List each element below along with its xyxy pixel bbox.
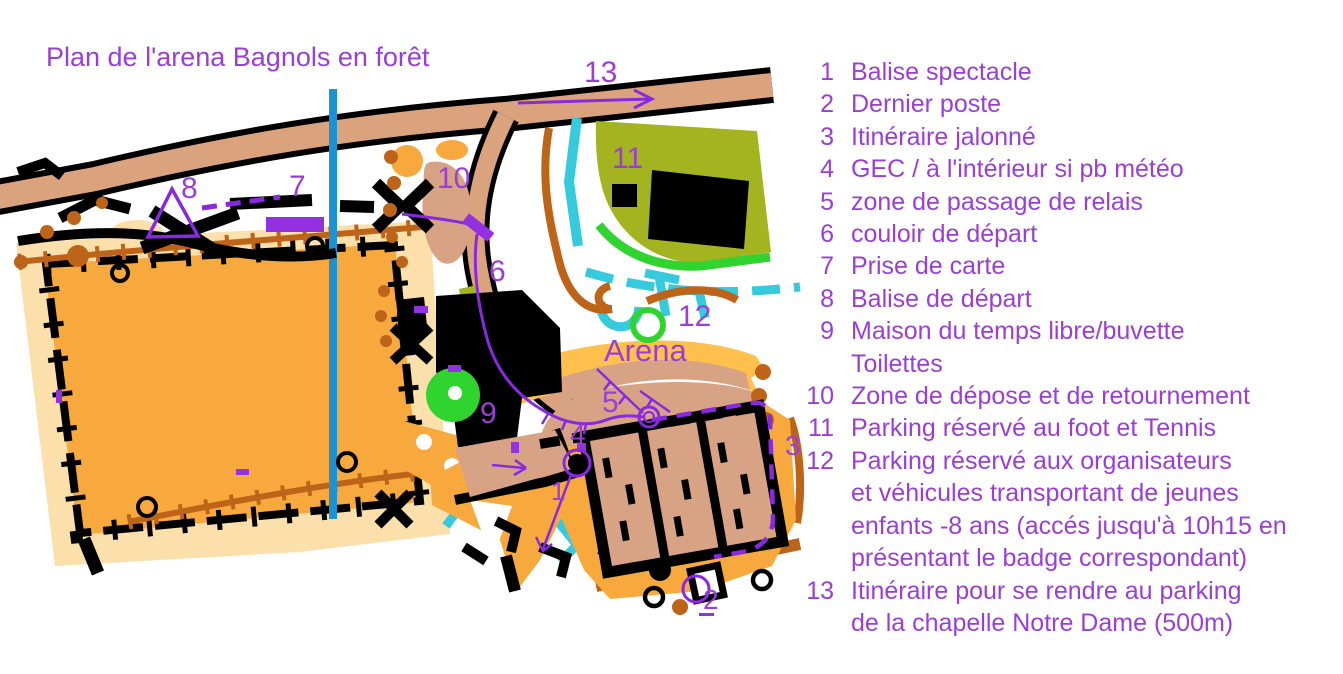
legend-item-4: 4GEC / à l'intérieur si pb météo: [806, 153, 1287, 185]
legend-item-text: Balise spectacle: [851, 56, 1032, 88]
legend-item-text: Itinéraire jalonné: [851, 121, 1036, 153]
legend-item-text: zone de passage de relais: [851, 186, 1143, 218]
legend-item-9: 9Maison du temps libre/buvetteToilettes: [806, 315, 1287, 380]
map-label-3: 3: [785, 430, 801, 461]
screenshot-root: 13111087612Arena954123 Plan de l'arena B…: [0, 0, 1343, 674]
legend-item-text: Parking réservé aux organisateurset véhi…: [851, 445, 1287, 575]
legend-line: Prise de carte: [851, 250, 1005, 282]
legend-item-text: Prise de carte: [851, 250, 1005, 282]
legend-line: Toilettes: [851, 348, 1185, 380]
legend-line: Balise de départ: [851, 283, 1032, 315]
legend-item-text: GEC / à l'intérieur si pb météo: [851, 153, 1184, 185]
legend-item-number: 1: [806, 56, 834, 88]
legend-line: et véhicules transportant de jeunes: [851, 477, 1287, 509]
legend-item-3: 3Itinéraire jalonné: [806, 121, 1287, 153]
legend-item-number: 11: [806, 412, 834, 444]
legend: 1Balise spectacle2Dernier poste3Itinérai…: [806, 56, 1287, 639]
legend-item-7: 7Prise de carte: [806, 250, 1287, 282]
map-label-8: 8: [181, 172, 198, 205]
legend-item-number: 9: [806, 315, 834, 347]
legend-item-text: Parking réservé au foot et Tennis: [851, 412, 1216, 444]
map-label-1: 1: [551, 476, 565, 506]
legend-item-6: 6couloir de départ: [806, 218, 1287, 250]
map-label-5: 5: [602, 386, 619, 419]
map-label-4: 4: [570, 419, 586, 450]
legend-line: Balise spectacle: [851, 56, 1032, 88]
legend-line: Parking réservé aux organisateurs: [851, 445, 1287, 477]
legend-item-text: couloir de départ: [851, 218, 1037, 250]
legend-item-2: 2Dernier poste: [806, 88, 1287, 120]
legend-item-text: Dernier poste: [851, 88, 1001, 120]
legend-line: présentant le badge correspondant): [851, 542, 1287, 574]
legend-item-10: 10Zone de dépose et de retournement: [806, 380, 1287, 412]
legend-item-12: 12Parking réservé aux organisateurset vé…: [806, 445, 1287, 575]
legend-item-11: 11Parking réservé au foot et Tennis: [806, 412, 1287, 444]
legend-item-number: 6: [806, 218, 834, 250]
orienteering-map: 13111087612Arena954123: [0, 0, 810, 674]
legend-item-13: 13Itinéraire pour se rendre au parkingde…: [806, 575, 1287, 640]
legend-item-5: 5zone de passage de relais: [806, 186, 1287, 218]
legend-line: Zone de dépose et de retournement: [851, 380, 1250, 412]
map-label-12: 12: [678, 300, 711, 333]
legend-line: zone de passage de relais: [851, 186, 1143, 218]
map-label-arena: Arena: [604, 333, 687, 368]
legend-item-text: Maison du temps libre/buvetteToilettes: [851, 315, 1185, 380]
legend-line: de la chapelle Notre Dame (500m): [851, 607, 1242, 639]
legend-item-number: 10: [806, 380, 834, 412]
map-label-10: 10: [437, 162, 470, 195]
legend-line: Maison du temps libre/buvette: [851, 315, 1185, 347]
legend-item-8: 8Balise de départ: [806, 283, 1287, 315]
legend-line: Parking réservé au foot et Tennis: [851, 412, 1216, 444]
legend-item-text: Balise de départ: [851, 283, 1032, 315]
legend-item-number: 4: [806, 153, 834, 185]
legend-line: Dernier poste: [851, 88, 1001, 120]
map-label-7: 7: [289, 170, 306, 203]
legend-item-number: 8: [806, 283, 834, 315]
legend-item-number: 7: [806, 250, 834, 282]
legend-item-number: 2: [806, 88, 834, 120]
map-label-6: 6: [489, 255, 506, 288]
legend-line: Itinéraire pour se rendre au parking: [851, 575, 1242, 607]
page-title: Plan de l'arena Bagnols en forêt: [46, 42, 429, 73]
legend-item-text: Zone de dépose et de retournement: [851, 380, 1250, 412]
legend-line: GEC / à l'intérieur si pb météo: [851, 153, 1184, 185]
legend-line: enfants -8 ans (accés jusqu'à 10h15 en: [851, 510, 1287, 542]
map-label-13: 13: [584, 56, 617, 89]
legend-line: couloir de départ: [851, 218, 1037, 250]
legend-item-1: 1Balise spectacle: [806, 56, 1287, 88]
map-label-2: 2: [703, 584, 719, 615]
legend-item-number: 3: [806, 121, 834, 153]
blue-divider-line: [329, 89, 337, 519]
legend-item-number: 5: [806, 186, 834, 218]
legend-item-number: 13: [806, 575, 834, 607]
legend-item-number: 12: [806, 445, 834, 477]
legend-line: Itinéraire jalonné: [851, 121, 1036, 153]
legend-item-text: Itinéraire pour se rendre au parkingde l…: [851, 575, 1242, 640]
map-label-11: 11: [612, 142, 643, 175]
map-label-9: 9: [480, 397, 497, 430]
